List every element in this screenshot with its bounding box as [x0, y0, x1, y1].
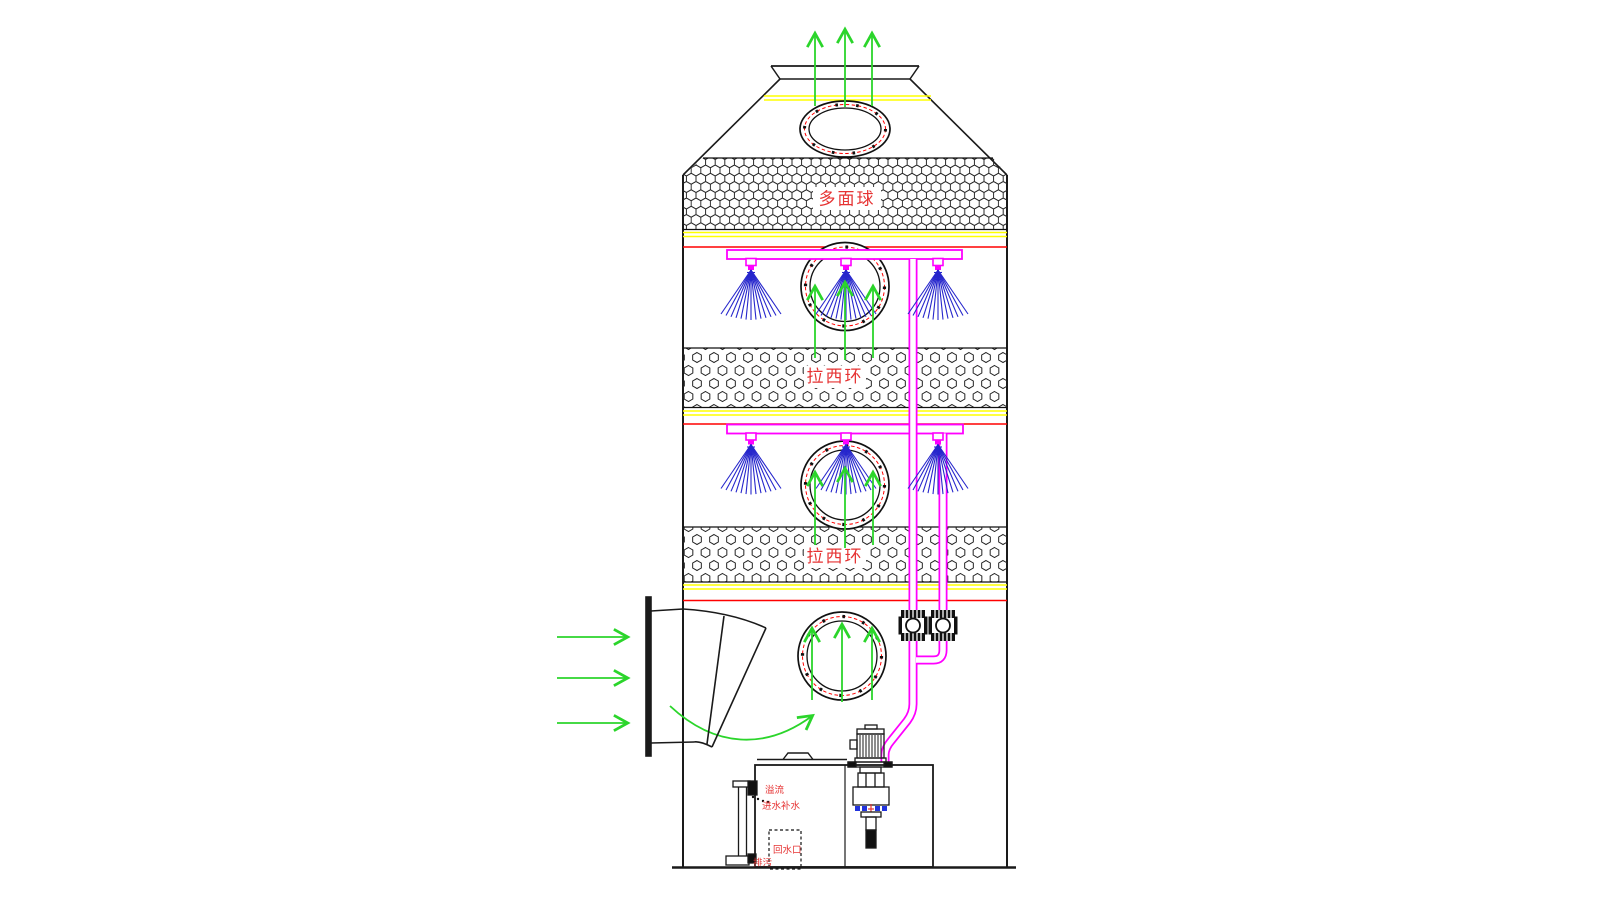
label-raschig-lower: 拉西环	[807, 547, 864, 566]
gauge-top-fitting	[748, 781, 757, 795]
inlet-flange	[646, 597, 651, 756]
label-packing-ball: 多面球	[819, 190, 876, 209]
label-raschig-upper: 拉西环	[807, 367, 864, 386]
label-overflow: 溢流	[765, 784, 785, 796]
label-return-port: 回水口	[773, 844, 802, 856]
spray-header-1	[727, 250, 962, 259]
process-diagram: 多面球 拉西环 拉西环	[0, 0, 1600, 900]
label-water-makeup: 进水补水	[762, 800, 801, 812]
cone-manhole-flange	[800, 101, 890, 157]
diagram-canvas: 多面球 拉西环 拉西环	[0, 0, 1600, 900]
spray-header-2	[727, 425, 963, 434]
